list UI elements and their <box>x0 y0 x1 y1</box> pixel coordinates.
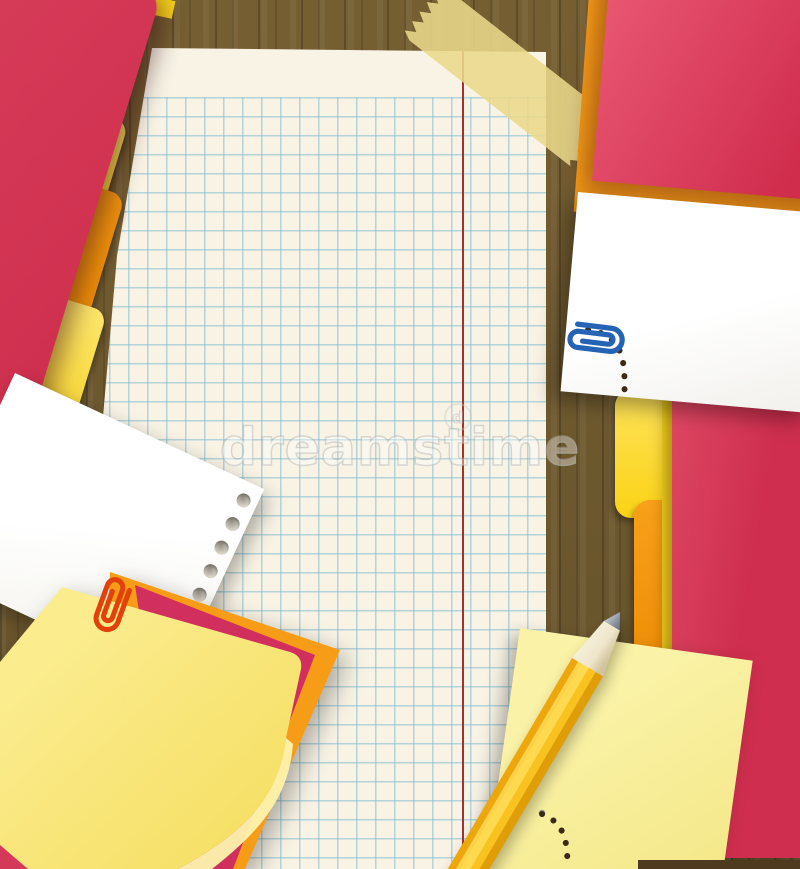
dotted-stitch-bottom <box>530 806 578 869</box>
desk-scene: d dreamstime <box>0 0 800 869</box>
wood-strip-bottom-right <box>638 860 800 869</box>
watermark-text: dreamstime <box>220 418 581 478</box>
